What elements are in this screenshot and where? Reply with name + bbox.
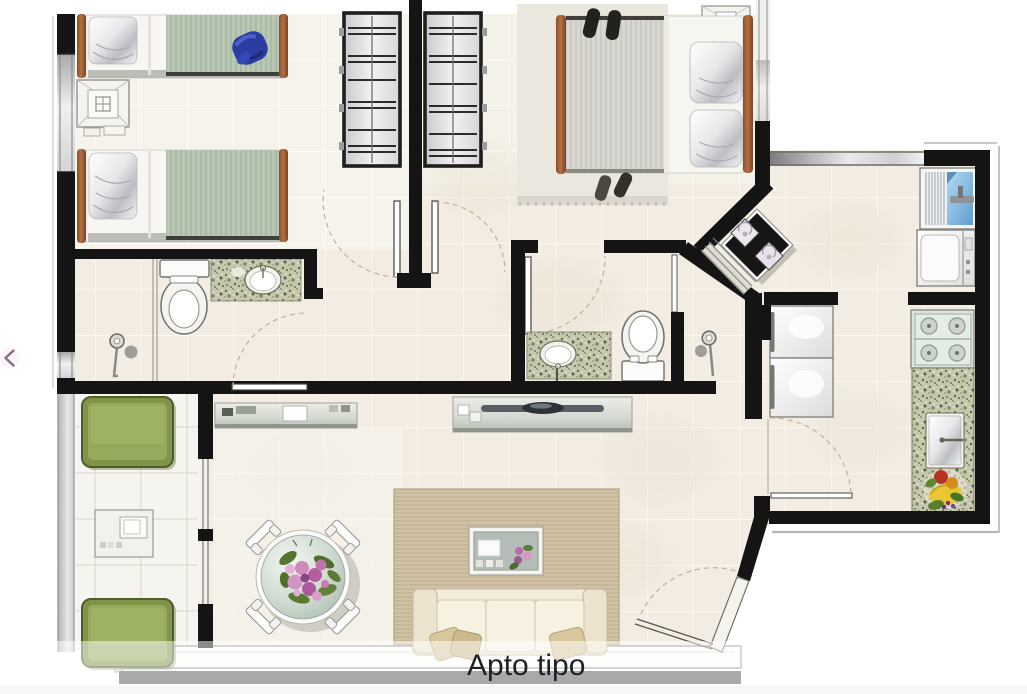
svg-text:Apto tipo: Apto tipo	[467, 649, 585, 682]
